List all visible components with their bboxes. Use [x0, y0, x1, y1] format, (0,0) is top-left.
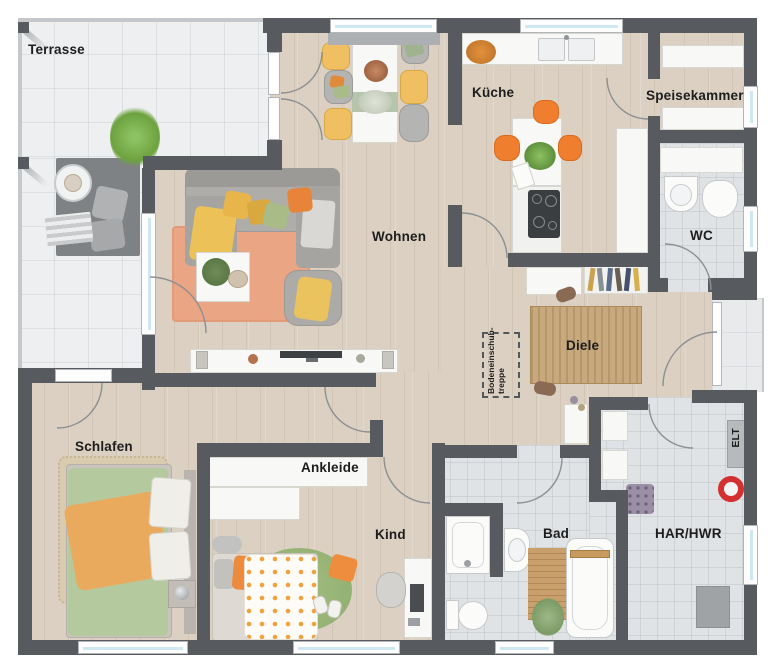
attic-hatch-label: Bodeneinschub- treppe	[486, 336, 516, 394]
floor-plan: Terrasse Küche Speisekammer WC Wohnen Di…	[0, 0, 775, 671]
room-label-elt: ELT	[730, 428, 742, 448]
attic-hatch-label-line2: treppe	[496, 336, 506, 394]
room-label-bad: Bad	[543, 526, 569, 541]
room-label-ankleide: Ankleide	[301, 460, 359, 475]
room-label-speisekammer: Speisekammer	[646, 88, 744, 103]
room-label-wc: WC	[690, 228, 713, 243]
room-label-kind: Kind	[375, 527, 406, 542]
room-label-har-hwr: HAR/HWR	[655, 526, 722, 541]
room-label-terrasse: Terrasse	[28, 42, 85, 57]
attic-hatch-label-line1: Bodeneinschub-	[486, 336, 496, 394]
room-label-kueche: Küche	[472, 85, 514, 100]
room-label-wohnen: Wohnen	[372, 229, 426, 244]
room-label-diele: Diele	[566, 338, 599, 353]
room-label-schlafen: Schlafen	[75, 439, 133, 454]
